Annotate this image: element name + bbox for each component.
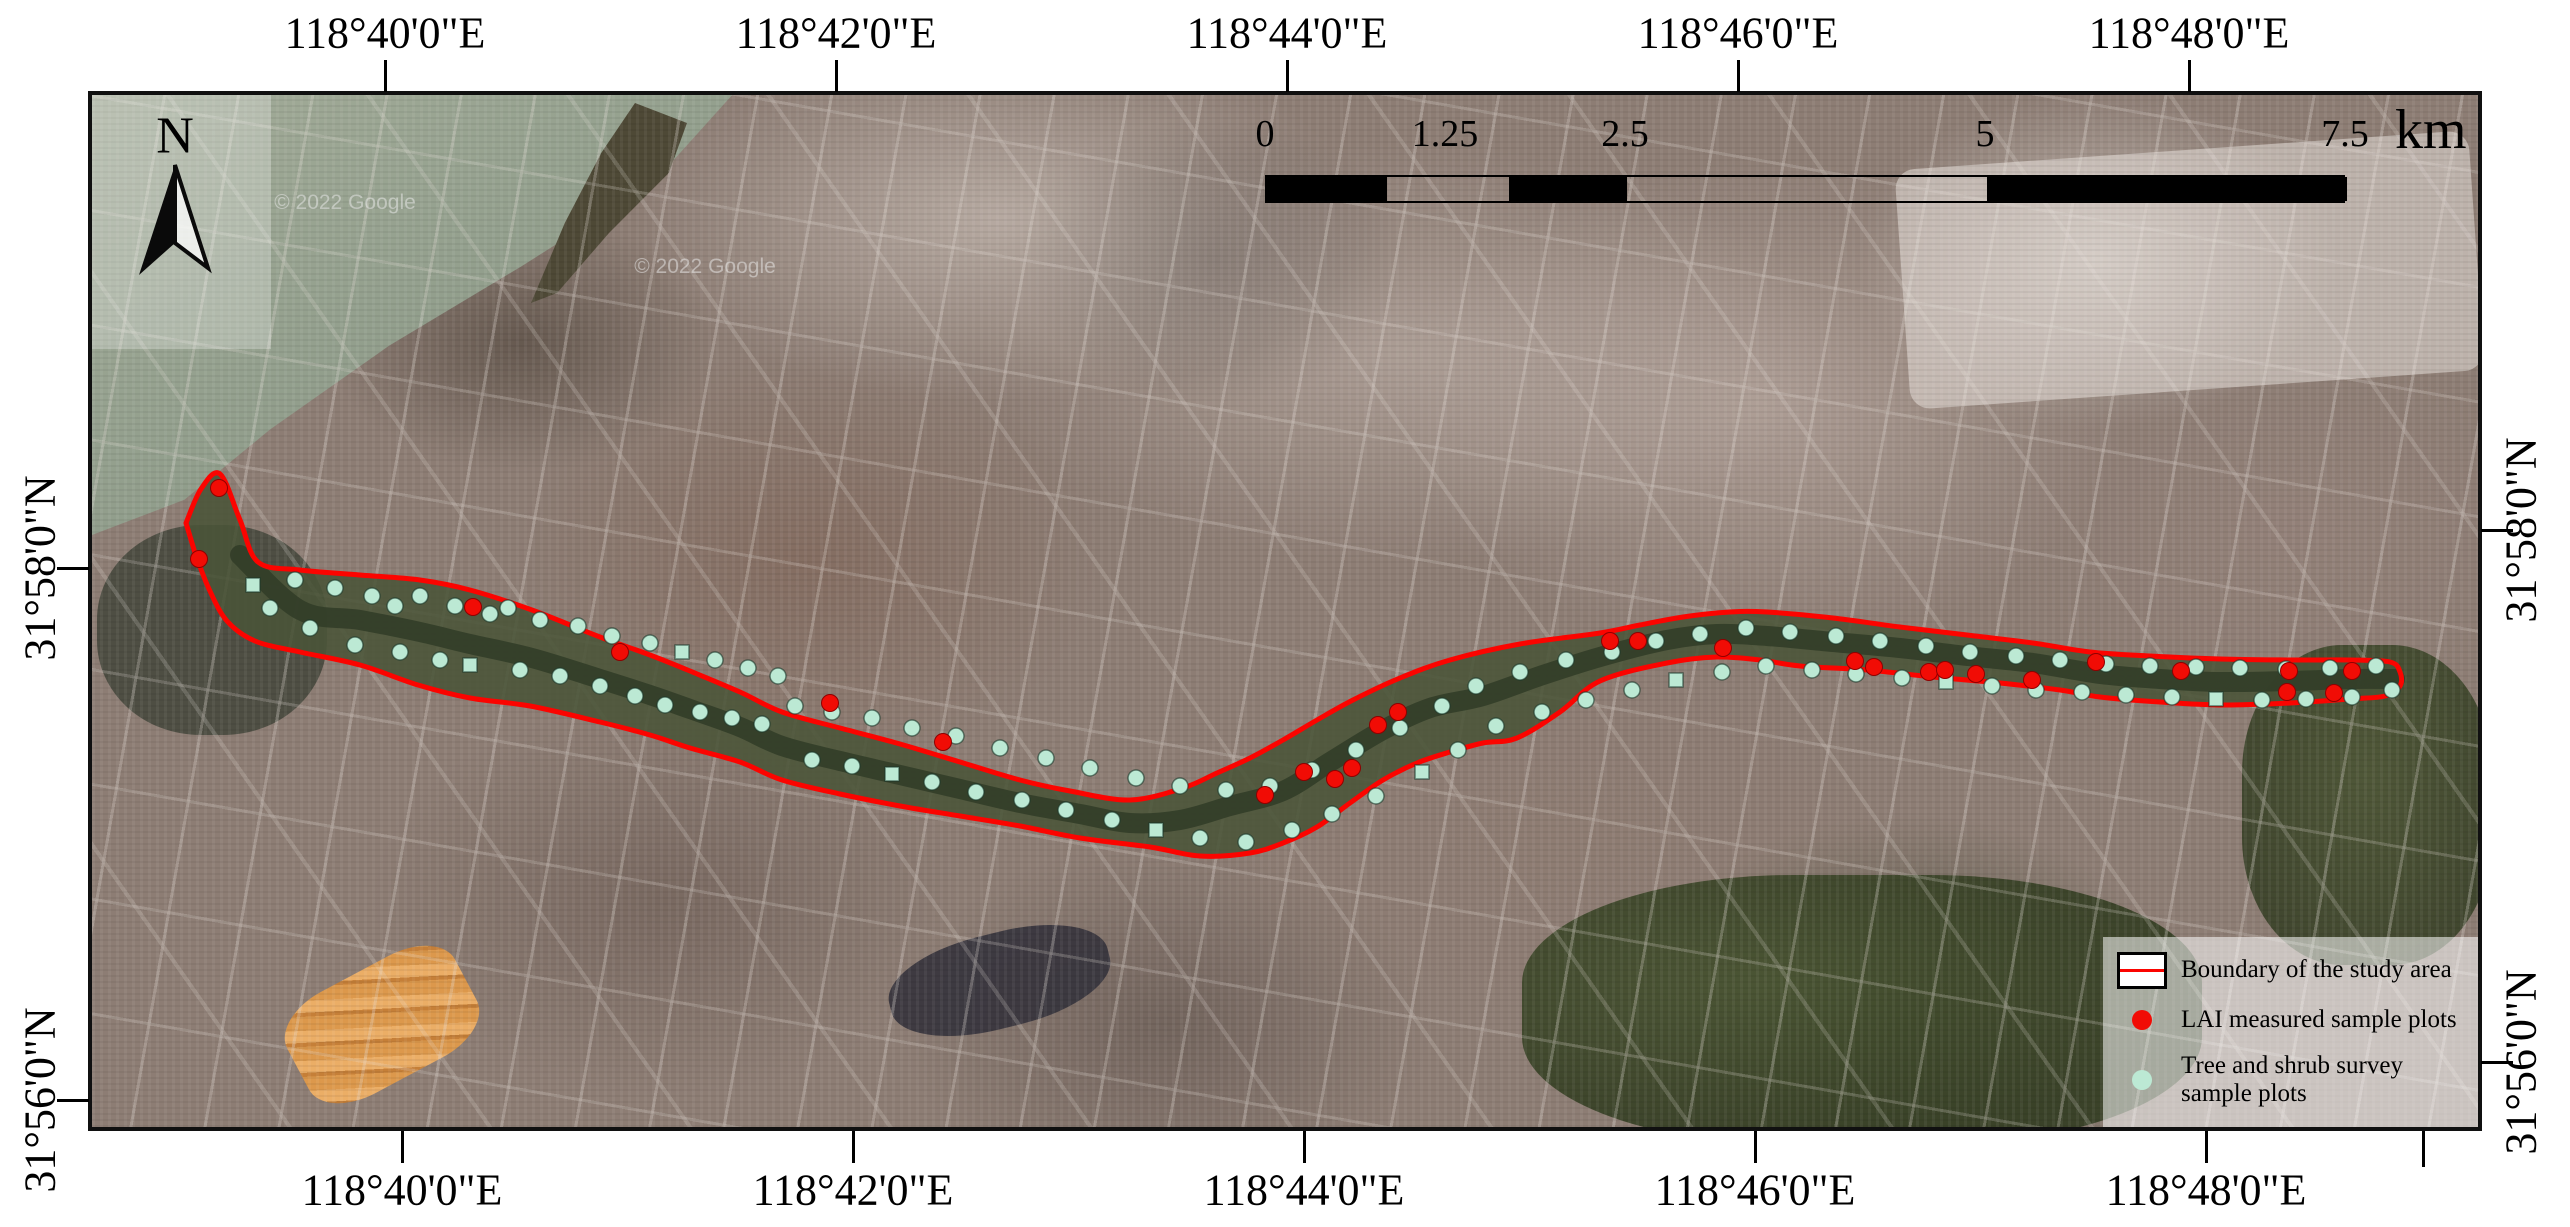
scale-bar-segment — [1509, 177, 1627, 201]
tree-shrub-plot-dot — [1782, 624, 1798, 640]
lai-plot-dot — [2281, 663, 2298, 680]
lai-plot-dot — [612, 644, 629, 661]
tree-shrub-plot-dot — [1468, 678, 1484, 694]
tree-shrub-plot-dot — [432, 652, 448, 668]
tree-shrub-plot-dot — [482, 606, 498, 622]
tree-shrub-plot-dot — [1128, 770, 1144, 786]
tree-shrub-plot-dot — [500, 600, 516, 616]
tree-shrub-plot-dot — [1828, 628, 1844, 644]
tree-shrub-plot-dot — [1284, 822, 1300, 838]
tree-shrub-plot-dot — [1368, 788, 1384, 804]
tree-shrub-plot-dot — [387, 598, 403, 614]
tree-shrub-plot-dot — [707, 652, 723, 668]
tree-shrub-plot-dot — [447, 598, 463, 614]
graticule-tick-top — [1737, 60, 1740, 92]
tree-shrub-plot-dot — [740, 660, 756, 676]
tree-shrub-plot-dot — [968, 784, 984, 800]
tree-shrub-plot-dot — [1488, 718, 1504, 734]
legend-item-label: LAI measured sample plots — [2181, 1006, 2457, 1034]
tree-shrub-plot-dot — [1872, 633, 1888, 649]
tree-shrub-plot-dot — [1014, 792, 1030, 808]
lai-plot-dot — [1630, 633, 1647, 650]
scale-bar-unit: km — [2395, 98, 2467, 162]
tree-shrub-plot-dot — [2074, 684, 2090, 700]
tree-shrub-plot-dot — [552, 668, 568, 684]
graticule-tick-top — [835, 60, 838, 92]
longitude-label-bottom: 118°42'0"E — [753, 1165, 954, 1216]
longitude-label-bottom: 118°44'0"E — [1204, 1165, 1405, 1216]
longitude-label-bottom: 118°48'0"E — [2106, 1165, 2307, 1216]
tree-shrub-plot-dot — [592, 678, 608, 694]
tree-shrub-plot-dot — [1512, 664, 1528, 680]
legend-item: Boundary of the study area — [2117, 952, 2478, 989]
tree-shrub-plot-dot — [2384, 682, 2400, 698]
graticule-tick-right — [2481, 529, 2513, 532]
graticule-tick-top — [2188, 60, 2191, 92]
google-watermark: © 2022 Google — [634, 255, 776, 279]
lai-plot-dot — [1715, 640, 1732, 657]
legend: Boundary of the study areaLAI measured s… — [2103, 937, 2478, 1127]
lai-plot-dot — [1602, 633, 1619, 650]
tree-shrub-plot-dot — [1192, 830, 1208, 846]
tree-shrub-plot-dot — [1415, 765, 1429, 779]
lai-plot-dot — [2173, 663, 2190, 680]
tree-shrub-plot-dot — [692, 704, 708, 720]
tree-shrub-plot-dot — [724, 710, 740, 726]
scale-bar-number: 1.25 — [1412, 112, 1479, 156]
graticule-tick-left — [57, 1099, 89, 1102]
tree-shrub-plot-dot — [463, 658, 477, 672]
tree-shrub-plot-dot — [1558, 652, 1574, 668]
longitude-label-top: 118°40'0"E — [285, 8, 486, 59]
tree-shrub-plot-dot — [992, 740, 1008, 756]
tree-shrub-plot-dot — [2142, 658, 2158, 674]
lai-plot-dot — [1968, 666, 1985, 683]
legend-boundary-line — [2120, 969, 2164, 972]
tree-shrub-plot-dot — [2209, 692, 2223, 706]
tree-shrub-plot-dot — [2008, 648, 2024, 664]
legend-item-label: Boundary of the study area — [2181, 956, 2452, 984]
scale-bar-number: 2.5 — [1601, 112, 1649, 156]
tree-shrub-plot-dot — [2118, 687, 2134, 703]
tree-shrub-plot-dot — [1648, 633, 1664, 649]
tree-shrub-plot-dot — [1434, 698, 1450, 714]
legend-item-label: Tree and shrub survey sample plots — [2181, 1052, 2478, 1108]
graticule-tick-right — [2481, 1061, 2513, 1064]
graticule-tick-bottom — [2205, 1131, 2208, 1163]
tree-shrub-plot-dot — [1962, 644, 1978, 660]
tree-shrub-plot-dot — [770, 668, 786, 684]
lai-plot-dot — [1327, 771, 1344, 788]
tree-shrub-plot-dot — [642, 635, 658, 651]
lai-plot-dot — [1921, 664, 1938, 681]
tree-shrub-plot-dot — [412, 588, 428, 604]
scale-bar-track — [1265, 175, 2345, 203]
tree-shrub-plot-dot — [1669, 673, 1683, 687]
figure-page: { "map": { "watermarks": [ {"text": "© 2… — [0, 0, 2570, 1227]
tree-shrub-plot-dot — [287, 572, 303, 588]
tree-shrub-plot-dot — [1082, 760, 1098, 776]
legend-item: Tree and shrub survey sample plots — [2117, 1052, 2478, 1108]
lai-plot-dot — [1344, 760, 1361, 777]
tree-shrub-plot-dot — [1392, 720, 1408, 736]
lai-plot-dot — [211, 480, 228, 497]
tree-shrub-plot-dot — [1984, 678, 2000, 694]
tree-shrub-plot-dot — [924, 774, 940, 790]
lai-plot-dot — [465, 599, 482, 616]
graticule-tick-top — [384, 60, 387, 92]
graticule-tick-bottom — [2422, 1131, 2425, 1167]
lai-plot-dot — [2088, 654, 2105, 671]
tree-shrub-plot-dot — [302, 620, 318, 636]
tree-shrub-plot-dot — [904, 720, 920, 736]
tree-shrub-plot-dot — [2188, 659, 2204, 675]
tree-shrub-plot-dot — [262, 600, 278, 616]
graticule-tick-bottom — [1303, 1131, 1306, 1163]
tree-shrub-plot-dot — [347, 637, 363, 653]
tree-shrub-plot-dot — [1578, 692, 1594, 708]
tree-shrub-plot-dot — [754, 716, 770, 732]
scale-bar-number: 7.5 — [2321, 112, 2369, 156]
lai-plot-dot — [2326, 685, 2343, 702]
tree-shrub-plot-dot — [1149, 823, 1163, 837]
lai-plot-dot — [935, 734, 952, 751]
lai-plot-dot — [2279, 684, 2296, 701]
legend-boundary-swatch — [2117, 952, 2167, 989]
longitude-label-top: 118°46'0"E — [1638, 8, 1839, 59]
tree-shrub-plot-dot — [787, 698, 803, 714]
graticule-tick-bottom — [852, 1131, 855, 1163]
tree-shrub-plot-dot — [1450, 742, 1466, 758]
tree-shrub-plot-dot — [1348, 742, 1364, 758]
tree-shrub-plot-dot — [657, 697, 673, 713]
google-watermark: © 2022 Google — [274, 191, 416, 215]
tree-shrub-plot-dot — [570, 618, 586, 634]
tree-shrub-plot-dot — [2052, 652, 2068, 668]
longitude-label-bottom: 118°40'0"E — [302, 1165, 503, 1216]
lai-plot-dot — [191, 551, 208, 568]
tree-shrub-plot-dot — [327, 580, 343, 596]
tree-shrub-plot-dot — [1894, 670, 1910, 686]
tree-shrub-plot-dot — [246, 578, 260, 592]
tree-shrub-plot-dot — [1238, 834, 1254, 850]
north-arrow-icon — [130, 160, 230, 285]
tree-shrub-plot-dot — [1058, 802, 1074, 818]
tree-shrub-plot-dot — [1104, 812, 1120, 828]
tree-shrub-plot-dot — [1758, 658, 1774, 674]
tree-shrub-plot-dot — [1038, 750, 1054, 766]
lai-plot-dot — [1847, 653, 1864, 670]
tree-shrub-plot-dot — [2254, 692, 2270, 708]
graticule-tick-bottom — [1754, 1131, 1757, 1163]
lai-plot-dot — [1257, 787, 1274, 804]
lai-plot-dot — [2344, 663, 2361, 680]
graticule-tick-bottom — [401, 1131, 404, 1163]
north-arrow-letter: N — [156, 107, 194, 166]
tree-shrub-plot-dot — [512, 662, 528, 678]
lai-plot-dot — [1937, 662, 1954, 679]
lai-plot-dot — [822, 695, 839, 712]
graticule-tick-left — [57, 567, 89, 570]
longitude-label-bottom: 118°46'0"E — [1655, 1165, 1856, 1216]
tree-shrub-plot-dot — [885, 767, 899, 781]
tree-shrub-plot-dot — [2344, 689, 2360, 705]
longitude-label-top: 118°44'0"E — [1187, 8, 1388, 59]
tree-shrub-plot-dot — [2232, 660, 2248, 676]
longitude-label-top: 118°42'0"E — [736, 8, 937, 59]
tree-shrub-plot-dot — [532, 612, 548, 628]
legend-tree-dot-icon — [2132, 1070, 2152, 1090]
tree-shrub-plot-dot — [1534, 704, 1550, 720]
tree-shrub-plot-dot — [2368, 658, 2384, 674]
tree-shrub-plot-dot — [1738, 620, 1754, 636]
graticule-tick-top — [1286, 60, 1289, 92]
scale-bar-segment — [1987, 177, 2347, 201]
lai-plot-dot — [1390, 704, 1407, 721]
tree-shrub-plot-dot — [1172, 778, 1188, 794]
legend-item: LAI measured sample plots — [2117, 1006, 2478, 1034]
tree-shrub-plot-dot — [844, 758, 860, 774]
lai-plot-dot — [1370, 717, 1387, 734]
tree-shrub-plot-dot — [2298, 691, 2314, 707]
tree-shrub-plot-dot — [1218, 782, 1234, 798]
tree-shrub-plot-dot — [1624, 682, 1640, 698]
tree-shrub-plot-dot — [675, 645, 689, 659]
lai-plot-dot — [1866, 659, 1883, 676]
tree-shrub-plot-dot — [1714, 664, 1730, 680]
lai-plot-dot — [2024, 672, 2041, 689]
legend-lai-dot-icon — [2132, 1010, 2152, 1030]
scale-bar-segment — [1267, 177, 1387, 201]
tree-shrub-plot-dot — [1324, 806, 1340, 822]
longitude-label-top: 118°48'0"E — [2089, 8, 2290, 59]
tree-shrub-plot-dot — [604, 628, 620, 644]
lai-plot-dot — [1296, 764, 1313, 781]
tree-shrub-plot-dot — [392, 644, 408, 660]
tree-shrub-plot-dot — [2322, 660, 2338, 676]
scale-bar-number: 5 — [1976, 112, 1995, 156]
tree-shrub-plot-dot — [1918, 638, 1934, 654]
tree-shrub-plot-dot — [864, 710, 880, 726]
tree-shrub-plot-dot — [2164, 689, 2180, 705]
tree-shrub-plot-dot — [364, 588, 380, 604]
tree-shrub-plot-dot — [627, 688, 643, 704]
tree-shrub-plot-dot — [1804, 662, 1820, 678]
tree-shrub-plot-dot — [804, 752, 820, 768]
scale-bar-number: 0 — [1256, 112, 1275, 156]
tree-shrub-plot-dot — [1692, 626, 1708, 642]
